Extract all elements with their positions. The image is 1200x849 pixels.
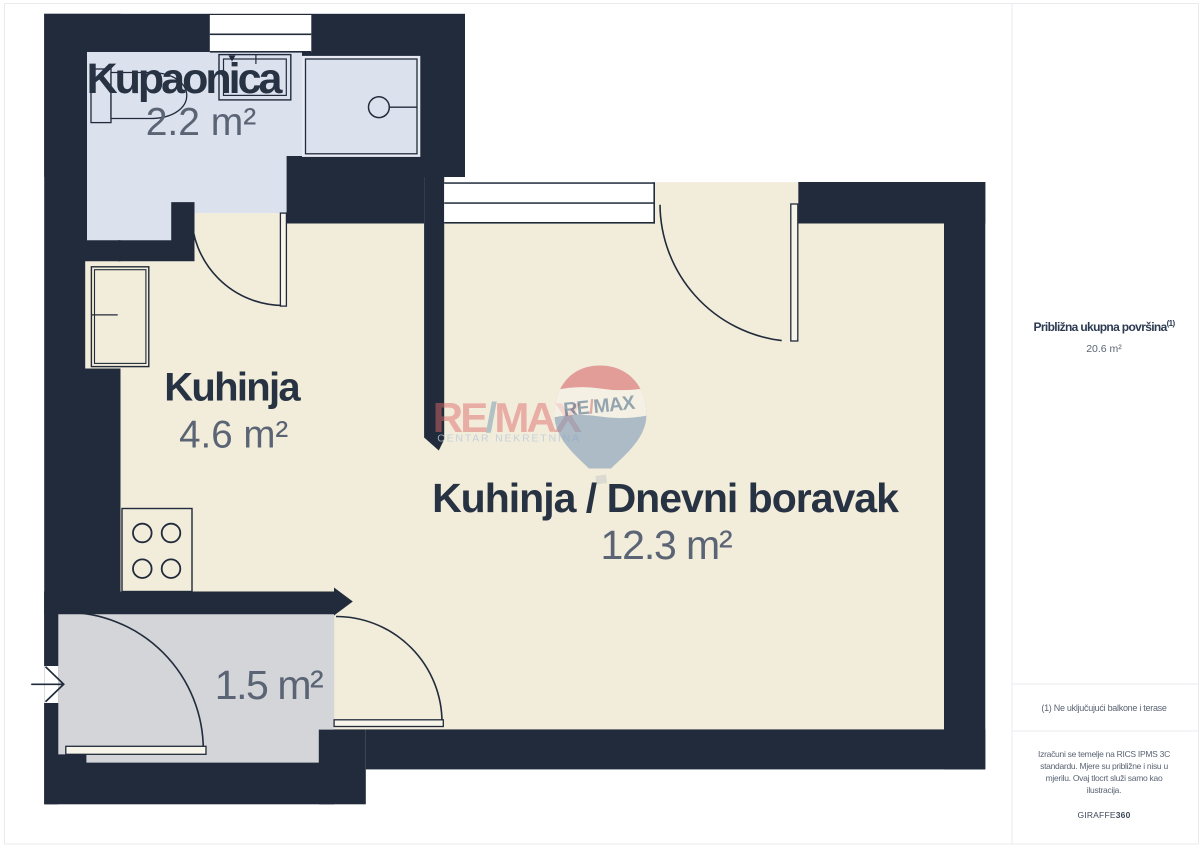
- svg-text:GIRAFFE360: GIRAFFE360: [1077, 810, 1130, 820]
- svg-text:1.5 m²: 1.5 m²: [215, 662, 323, 708]
- svg-text:2.2 m²: 2.2 m²: [146, 101, 257, 144]
- svg-text:12.3 m²: 12.3 m²: [601, 522, 732, 568]
- svg-text:Izračuni se temelje na RICS IP: Izračuni se temelje na RICS IPMS 3C: [1038, 749, 1170, 759]
- svg-text:Približna ukupna površina(1): Približna ukupna površina(1): [1034, 319, 1176, 334]
- svg-text:CENTAR NEKRETNINA: CENTAR NEKRETNINA: [437, 433, 581, 445]
- svg-text:Kupaonica: Kupaonica: [87, 55, 284, 103]
- svg-text:20.6 m²: 20.6 m²: [1086, 343, 1122, 355]
- svg-text:mjerilu. Ovaj tlocrt služi sam: mjerilu. Ovaj tlocrt služi samo kao: [1046, 773, 1163, 783]
- svg-text:Kuhinja / Dnevni boravak: Kuhinja / Dnevni boravak: [432, 475, 899, 521]
- svg-text:(1) Ne uključujući balkone i t: (1) Ne uključujući balkone i terase: [1041, 703, 1167, 713]
- svg-text:standardu. Mjere su približne: standardu. Mjere su približne i nisu u: [1040, 761, 1168, 771]
- svg-text:Kuhinja: Kuhinja: [164, 366, 301, 410]
- svg-text:4.6 m²: 4.6 m²: [179, 414, 288, 457]
- svg-text:ilustracija.: ilustracija.: [1087, 785, 1121, 795]
